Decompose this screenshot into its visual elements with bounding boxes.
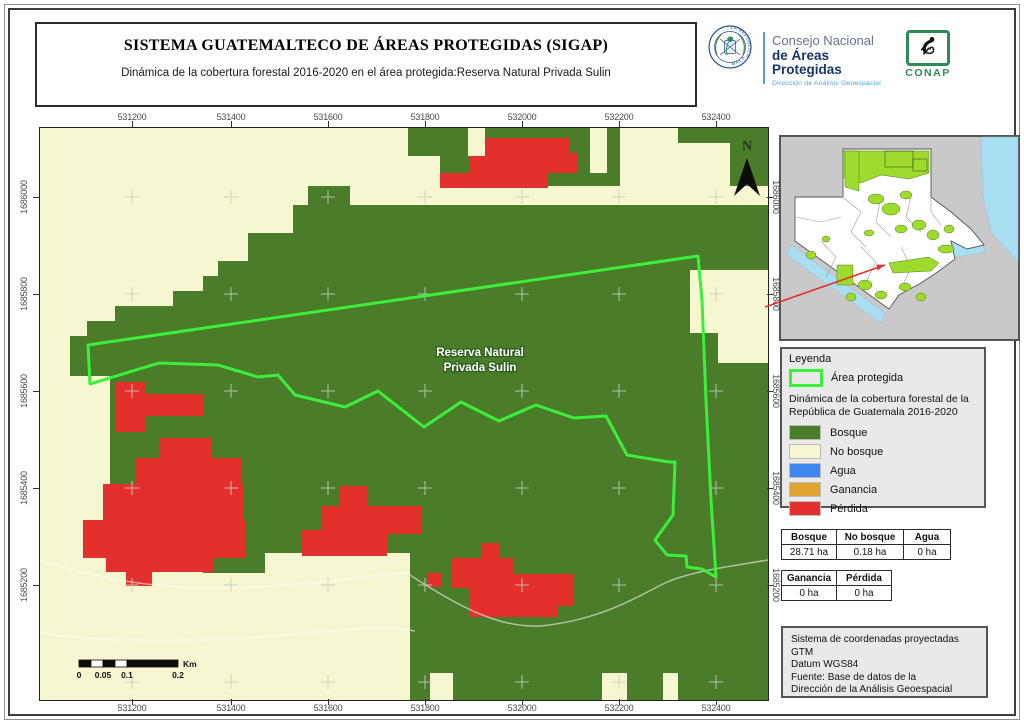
inset-protected-area	[900, 191, 912, 199]
raster-cell-perdida	[322, 506, 422, 534]
legend-subtitle: Dinámica de la cobertura forestal de la …	[789, 393, 977, 419]
axis-tick	[716, 699, 717, 705]
org-name-line3: Dirección de Análisis Geoespacial	[772, 80, 902, 87]
legend: Leyenda Área protegida Dinámica de la co…	[780, 347, 986, 508]
y-axis-label-left: 1685800	[19, 274, 29, 314]
scale-bar-segment	[115, 660, 127, 667]
change-table: GananciaPérdida0 ha0 ha	[781, 570, 892, 601]
axis-tick	[231, 121, 232, 127]
raster-cell-perdida	[103, 484, 243, 522]
legend-item-pérdida: Pérdida	[789, 501, 977, 516]
raster-cell-perdida	[482, 543, 500, 559]
y-axis-label-left: 1685600	[19, 371, 29, 411]
legend-item-label: Pérdida	[830, 503, 868, 515]
area-protegida-swatch	[789, 369, 823, 387]
legend-title: Leyenda	[789, 353, 977, 365]
raster-cell-no-bosque	[590, 128, 607, 173]
legend-swatch	[789, 444, 821, 459]
raster-cell-perdida	[135, 458, 242, 488]
table-header-cell: Agua	[904, 530, 951, 545]
inset-protected-area	[882, 203, 900, 215]
north-label: N	[742, 139, 752, 154]
inset-protected-area	[858, 280, 872, 290]
legend-area-item: Área protegida	[789, 369, 977, 387]
axis-tick	[33, 197, 39, 198]
area-protegida-label: Área protegida	[831, 372, 903, 384]
raster-cell-perdida	[440, 173, 515, 188]
raster-cell-bosque	[173, 291, 768, 307]
legend-item-label: No bosque	[830, 446, 883, 458]
scale-bar-segment	[79, 660, 91, 667]
legend-swatch	[789, 425, 821, 440]
legend-items: BosqueNo bosqueAguaGananciaPérdida	[789, 425, 977, 516]
axis-tick	[425, 121, 426, 127]
raster-cell-perdida	[146, 394, 204, 416]
raster-cell-no-bosque	[430, 673, 453, 700]
inset-svg	[781, 137, 1014, 335]
axis-tick	[132, 121, 133, 127]
table-value-cell: 0 ha	[904, 545, 951, 560]
axis-tick	[767, 488, 773, 489]
info-line: GTM	[791, 647, 978, 660]
info-line: Dirección de la Análisis Geoespacial	[791, 684, 978, 697]
raster-cell-perdida	[545, 153, 577, 173]
inset-protected-area	[944, 225, 954, 233]
inset-protected-area	[864, 230, 874, 236]
raster-cell-bosque	[203, 276, 768, 292]
legend-swatch	[789, 482, 821, 497]
org-name-line1: Consejo Nacional	[772, 34, 902, 48]
inset-protected-area	[837, 265, 853, 285]
map-canvas: Reserva NaturalPrivada SulinN00.050.10.2…	[39, 127, 769, 701]
raster-cell-no-bosque	[602, 673, 627, 700]
legend-item-label: Ganancia	[830, 484, 877, 496]
info-line: Fuente: Base de datos de la	[791, 672, 978, 685]
table-header-cell: Ganancia	[782, 571, 837, 586]
seal-icon: GOBIERNO DE LA REPÚBLICA GUATEMALA	[708, 25, 752, 69]
projection-info-box: Sistema de coordenadas proyectadasGTMDat…	[781, 626, 988, 698]
raster-cell-perdida	[340, 486, 368, 508]
raster-cell-no-bosque	[620, 128, 678, 190]
info-line: Datum WGS84	[791, 659, 978, 672]
axis-tick	[231, 699, 232, 705]
axis-tick	[425, 699, 426, 705]
scale-bar-segment	[103, 660, 115, 667]
legend-item-ganancia: Ganancia	[789, 482, 977, 497]
inset-protected-area	[806, 251, 816, 259]
raster-cell-bosque	[218, 261, 768, 277]
legend-swatch	[789, 463, 821, 478]
raster-cell-perdida	[302, 530, 387, 556]
legend-item-bosque: Bosque	[789, 425, 977, 440]
axis-tick	[767, 585, 773, 586]
scale-bar-tick-label: 0.2	[172, 670, 184, 680]
inset-protected-area	[822, 236, 830, 242]
inset-protected-area	[845, 151, 859, 191]
logo-divider	[763, 32, 765, 84]
inset-protected-area	[875, 291, 887, 299]
legend-subtitle-line2: República de Guatemala 2016-2020	[789, 406, 958, 418]
raster-cell-bosque	[70, 336, 768, 376]
axis-tick	[33, 585, 39, 586]
axis-tick	[619, 121, 620, 127]
legend-item-agua: Agua	[789, 463, 977, 478]
page-title: SISTEMA GUATEMALTECO DE ÁREAS PROTEGIDAS…	[37, 37, 695, 55]
inset-protected-area	[868, 194, 884, 204]
legend-subtitle-line1: Dinámica de la cobertura forestal de la	[789, 393, 969, 405]
coverage-table: BosqueNo bosqueAgua28.71 ha0.18 ha0 ha	[781, 529, 951, 560]
conap-logo: CONAP	[905, 30, 951, 79]
scale-bar-tick-label: 0.05	[95, 670, 112, 680]
scale-bar-tick-label: 0	[77, 670, 82, 680]
y-axis-label-left: 1686000	[19, 177, 29, 217]
raster-cell-no-bosque	[408, 156, 440, 186]
axis-tick	[716, 121, 717, 127]
raster-cell-perdida	[83, 520, 245, 558]
conap-org-text: Consejo Nacional de Áreas Protegidas Dir…	[772, 34, 902, 87]
axis-tick	[328, 121, 329, 127]
scale-bar-segment	[91, 660, 103, 667]
table-header-cell: Pérdida	[837, 571, 892, 586]
conap-monkey-icon	[906, 30, 950, 66]
inset-protected-area	[916, 293, 926, 301]
table-value-cell: 0.18 ha	[837, 545, 904, 560]
raster-cell-perdida	[470, 587, 558, 617]
raster-cell-no-bosque	[678, 143, 730, 190]
axis-tick	[767, 294, 773, 295]
y-axis-label-left: 1685400	[19, 468, 29, 508]
table-header-cell: Bosque	[782, 530, 837, 545]
inset-protected-area	[846, 293, 856, 301]
legend-item-label: Agua	[830, 465, 856, 477]
table-header-cell: No bosque	[837, 530, 904, 545]
header-box: SISTEMA GUATEMALTECO DE ÁREAS PROTEGIDAS…	[35, 22, 697, 107]
government-seal-logo: GOBIERNO DE LA REPÚBLICA GUATEMALA	[708, 25, 752, 69]
info-line: Sistema de coordenadas proyectadas	[791, 634, 978, 647]
page: SISTEMA GUATEMALTECO DE ÁREAS PROTEGIDAS…	[0, 0, 1024, 724]
raster-cell-perdida	[116, 382, 146, 432]
raster-cell-bosque	[293, 205, 768, 233]
y-axis-label-left: 1685200	[19, 565, 29, 605]
axis-tick	[619, 699, 620, 705]
axis-tick	[522, 699, 523, 705]
inset-protected-area	[912, 220, 926, 230]
table-value-cell: 28.71 ha	[782, 545, 837, 560]
raster-cell-no-bosque	[718, 333, 768, 363]
legend-item-no-bosque: No bosque	[789, 444, 977, 459]
raster-cell-bosque	[308, 186, 350, 206]
conap-label: CONAP	[905, 67, 951, 79]
scale-bar-unit: Km	[183, 659, 197, 669]
raster-cell-no-bosque	[468, 128, 485, 156]
scale-bar-tick-label: 0.1	[121, 670, 133, 680]
inset-protected-area	[927, 230, 939, 240]
inset-protected-area	[895, 225, 907, 233]
raster-cell-perdida	[106, 558, 214, 572]
legend-item-label: Bosque	[830, 427, 867, 439]
axis-tick	[33, 294, 39, 295]
axis-tick	[522, 121, 523, 127]
axis-tick	[767, 197, 773, 198]
raster-cell-perdida	[452, 558, 514, 588]
table-value-cell: 0 ha	[782, 586, 837, 601]
scale-bar-segment	[127, 660, 178, 667]
inset-overview-map	[779, 135, 1020, 341]
raster-cell-bosque	[115, 306, 768, 322]
axis-tick	[328, 699, 329, 705]
inset-protected-area	[938, 245, 954, 253]
axis-tick	[767, 391, 773, 392]
table-value-cell: 0 ha	[837, 586, 892, 601]
legend-swatch	[789, 501, 821, 516]
inset-protected-area	[899, 283, 911, 291]
raster-cell-no-bosque	[663, 673, 678, 700]
page-subtitle: Dinámica de la cobertura forestal 2016-2…	[37, 67, 695, 79]
org-name-line2: de Áreas Protegidas	[772, 49, 902, 77]
axis-tick	[33, 488, 39, 489]
axis-tick	[132, 699, 133, 705]
map-svg: Reserva NaturalPrivada SulinN00.050.10.2…	[40, 128, 768, 700]
axis-tick	[33, 391, 39, 392]
